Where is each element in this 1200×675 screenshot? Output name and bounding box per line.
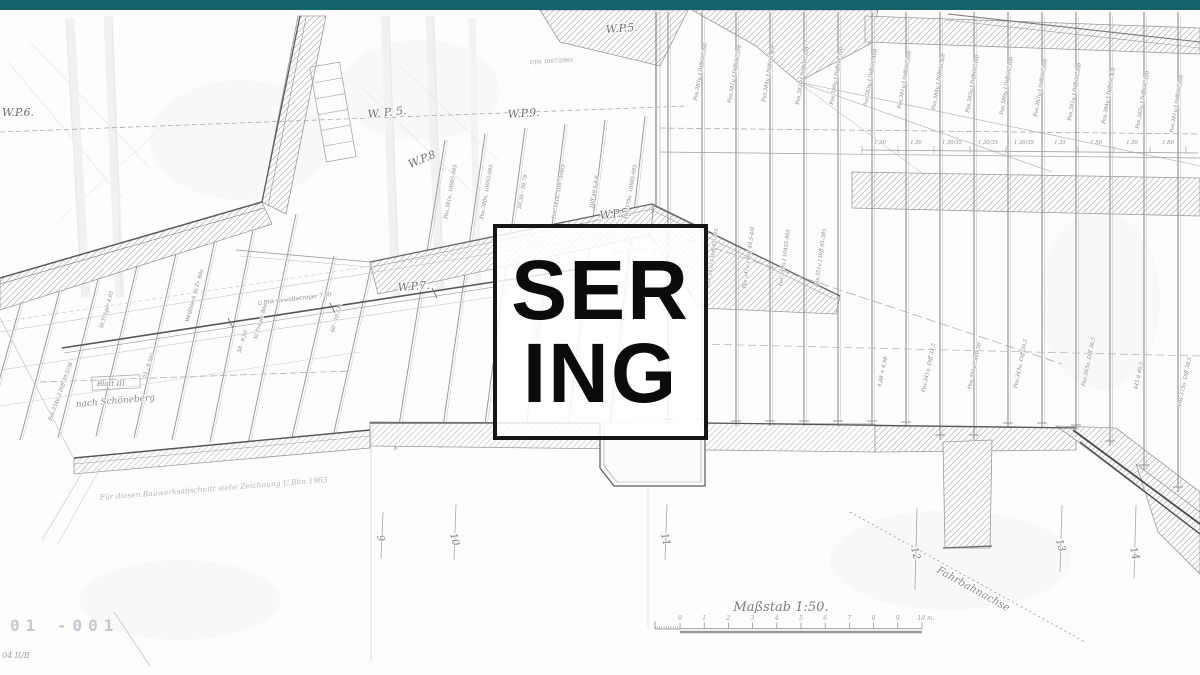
joist-line (440, 134, 485, 448)
scale-tick-label: 9 (896, 615, 900, 622)
dimension-label: 1,35 (1054, 140, 1066, 146)
joist-line (395, 140, 445, 450)
watermark-line-2: ING (523, 332, 678, 415)
beam-annotation: Pos.384u.I Diff 36,4/8 (761, 45, 777, 104)
scale-tick-label: 7 (847, 615, 851, 622)
structure-line (240, 256, 370, 267)
structure-line (236, 250, 370, 262)
structure-line (330, 303, 335, 313)
handwritten-label: Blatt III (96, 380, 125, 388)
hatch-region (0, 202, 272, 310)
handwritten-label: W.P.7. (397, 279, 430, 294)
joist-line (330, 262, 372, 450)
beam-annotation: 58 - 9,50 (237, 329, 250, 354)
dimension-label: 1,50 (910, 140, 922, 146)
beam-annotation: Pos.381u.I Diff 36,380 (1067, 62, 1083, 122)
handwritten-label: W.P.5. (605, 21, 638, 36)
beam-annotation: Pos.381u. 10873/965 (551, 164, 567, 221)
station-number: 9 (374, 534, 386, 544)
station-line (1134, 505, 1136, 578)
beam-annotation: 4,88 + 4,98 (877, 355, 890, 388)
handwritten-label: W.P.9. (507, 106, 540, 121)
beam-annotation: Pos.373u. Diff 38,5 (1177, 357, 1193, 408)
beam-annotation: Pos.381u.I Diff 36,380 (727, 44, 743, 104)
ghost-line (30, 42, 150, 168)
structure-line (798, 82, 926, 176)
beam-annotation: Pos.354ü.2 Diff 39,5/38 (47, 361, 74, 423)
top-bar (0, 0, 1200, 10)
beam-annotation: Pos.380u.I Diff 36,380 (999, 56, 1015, 116)
beam-annotation: Pos.383u.I Diff 36,480 (863, 48, 879, 108)
beam-annotation: Pos.384u.I Diff 36,4/8 (931, 53, 947, 112)
structure-line (660, 152, 1200, 158)
scale-tick-label: 2 (725, 615, 730, 622)
beam-annotation: Pos.383u.I Diff 36,380 (1033, 58, 1049, 118)
handwritten-label: U.Bhk Gewölbeträger 7,80 (258, 292, 333, 307)
axis-dashed-line (40, 371, 350, 382)
handwritten-label: nach Schöneberg (75, 393, 155, 410)
dimension-label: 1,30/35 (942, 140, 962, 146)
beam-annotation: Pos.381u.I Diff 36,380 (897, 50, 913, 110)
watermark: SER ING (493, 224, 708, 440)
scale-tick-label: 3 (751, 615, 755, 622)
handwritten-label: W.P.6. (2, 106, 34, 119)
beam-annotation: Pos.343u. Diff 39,5 (1013, 339, 1029, 390)
beam-annotation: 55 - 9,505 (142, 352, 157, 379)
beam-annotation: Pos.381u. 10885-985 (443, 164, 459, 221)
archive-stamp: 01 -001 (10, 616, 119, 635)
shaft-ladder-rung (315, 94, 345, 99)
hatch-region (865, 16, 1200, 54)
dimension-label: 1,30 (874, 140, 886, 146)
beam-annotation: Pos.384u.I Diff 36,4/8 (1101, 67, 1117, 126)
hatch-region (852, 172, 1200, 216)
scale-tick-label: 6 (823, 615, 827, 622)
station-number: 14 (1127, 546, 1141, 561)
structure-line (42, 463, 88, 540)
beam-annotation: St.Träger 4,05 (99, 290, 115, 329)
station-number: 10 (447, 532, 461, 548)
scale-tick-label: 8 (872, 615, 876, 622)
dimension-label: 1,30/35 (1014, 140, 1034, 146)
scale-tick-label: 5 (799, 615, 803, 622)
dimension-label: 1,50 (1090, 140, 1102, 146)
beam-annotation: Diff 49,5-4/8 (589, 174, 601, 209)
scale-tick-label: 4 (774, 615, 779, 622)
beam-annotation: Pos.383u.I Diff 36,380 (965, 54, 981, 114)
dimension-label: 1,80 (1162, 140, 1174, 146)
handwritten-label: Für diesen Bauwerksabschnitt siehe Zeich… (98, 475, 328, 502)
shaft-ladder-rung (313, 78, 343, 83)
dimension-label: 1,30/35 (978, 140, 998, 146)
hatch-region (692, 10, 878, 82)
structure-line (0, 208, 264, 284)
structure-line (0, 296, 500, 370)
beam-annotation: Weißblech St.Tr. 80a (185, 269, 206, 323)
handwritten-label: Ufm 10873/965 (530, 58, 574, 66)
beam-annotation: Pos.380u. 10055-985 (479, 164, 495, 221)
scale-tick-label: 0 (678, 615, 682, 622)
shaft-ladder-rung (318, 109, 348, 114)
beam-annotation: Pos.351u.I Diff 65-385 (814, 228, 828, 288)
ghost-line (8, 62, 122, 198)
station-number: 11 (658, 532, 672, 547)
beam-annotation: Pos.381u.I Diff 36,380 (1169, 74, 1185, 134)
beam-annotation: Pos.341u. Diff 34,5 (921, 343, 937, 394)
beam-annotation: Pos.383u.I Diff 36,380 (693, 42, 709, 102)
scanned-plan-page: 91011121314Maßstab 1:50.012345678910 m.1… (0, 0, 1200, 675)
hatch-region (74, 430, 370, 474)
structure-line (58, 468, 100, 544)
joist-line (332, 262, 374, 450)
scale-unit-label: 10 m. (917, 615, 934, 622)
hatch-region (943, 440, 992, 548)
scale-tick-label: 1 (702, 615, 706, 622)
beam-annotation: Pos.381u. 50/0,50 (967, 341, 983, 390)
beam-annotation: Pos.383u.I Diff 36,380 (1135, 70, 1151, 130)
dimension-line (862, 150, 1198, 153)
scale-title: Maßstab 1:50. (732, 600, 828, 615)
dimension-label: 1,50 (1126, 140, 1138, 146)
archive-stamp-sub: 04 II/B (2, 651, 30, 660)
watermark-line-1: SER (511, 249, 690, 332)
